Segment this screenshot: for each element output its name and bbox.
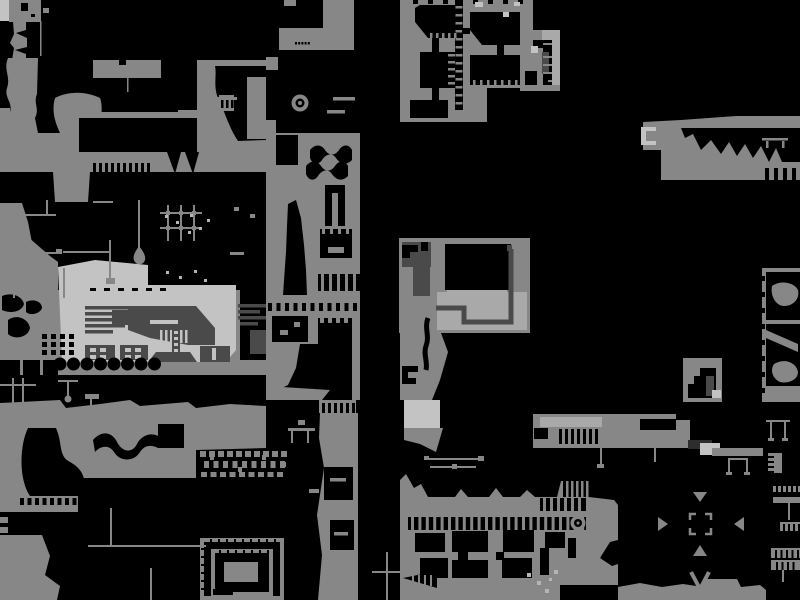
rubble-row2	[261, 461, 266, 468]
bigroom-tail-squiggle	[425, 318, 428, 370]
redge-box2	[771, 560, 800, 570]
tl-block-hole	[21, 3, 28, 11]
spiky-tooth	[785, 128, 788, 135]
redge-tickbar-tick	[796, 486, 798, 492]
tc-corridor-tick	[353, 274, 356, 291]
rubble-row3	[268, 472, 274, 477]
pole-vline-g	[63, 268, 65, 298]
bigroom-tail-light	[404, 400, 440, 428]
tc-ringbar2	[327, 110, 345, 114]
lt-window-row3	[69, 350, 74, 355]
brt-pole-pip3	[597, 464, 604, 468]
bc-striped-line	[581, 481, 584, 497]
tc-combrow-tick	[353, 303, 357, 311]
redge-box1-tick	[797, 550, 799, 558]
rubble-row1	[245, 451, 251, 457]
tr-top-tick	[413, 0, 418, 4]
bc-conn1	[458, 552, 468, 560]
tc-lower-room1-pip2	[294, 322, 300, 327]
shaft-combbox-tick	[340, 403, 343, 413]
tc-dot	[308, 42, 310, 45]
spiral-tick-left	[201, 556, 207, 558]
pole-grid-dotB	[192, 226, 196, 230]
lt-window-row1	[42, 334, 47, 339]
tl-comb-tick	[135, 163, 138, 172]
pole-vline-f	[52, 272, 54, 298]
tc-lower-room1	[272, 316, 308, 342]
bc-corridor-tick	[411, 517, 414, 530]
redge-box1-tick	[781, 550, 783, 558]
shelter-lightpip	[531, 46, 538, 53]
blq-comb-tick	[35, 498, 39, 505]
building-top-dash	[146, 288, 152, 291]
bc-conn4	[568, 538, 576, 558]
tr-conn4	[462, 28, 470, 34]
tc-corridor-tick	[321, 274, 324, 291]
lt-midblack-tick2	[40, 360, 43, 375]
bc-corridor-tick	[529, 517, 532, 530]
tr-shaft-rung	[456, 70, 463, 73]
lt-stripe1	[238, 304, 266, 308]
rubble-row2	[214, 461, 219, 468]
pole-hline-b-pip	[56, 249, 62, 254]
building-box2-pipsA	[135, 348, 141, 352]
tr-room5-tooth	[508, 80, 511, 85]
blq-comb-tick	[20, 498, 24, 505]
bc-bar-tick	[543, 498, 546, 511]
tr-room2-rung	[448, 54, 455, 57]
spiral-core	[224, 562, 258, 582]
redge-tickbar-tick	[786, 486, 788, 492]
rubble-row2	[252, 461, 257, 468]
bigroom-key-notch	[421, 242, 428, 251]
spiky-pole-v2	[782, 141, 785, 148]
tc-dot	[295, 42, 297, 45]
bc-arrow-hatch	[418, 575, 420, 586]
redge-box2-tick	[776, 562, 778, 570]
pip-scatter-i	[204, 279, 207, 282]
building-box1-pipsA	[90, 348, 96, 352]
rubble-row3	[211, 472, 217, 477]
lt-window-row2	[69, 342, 74, 347]
brt-comb	[589, 429, 592, 444]
rubble-extra3	[262, 455, 266, 460]
shaft-combbox-tick	[346, 403, 349, 413]
rubble-row2	[204, 461, 209, 468]
redge-box1-tick	[792, 550, 794, 558]
shaft-combbox-tick	[334, 403, 337, 413]
tr-room2-rung	[448, 61, 455, 64]
building-box2-pipsA	[125, 348, 131, 352]
building-box1-pipsA	[100, 348, 106, 352]
pip-band-a	[234, 207, 239, 211]
tl-arm	[93, 60, 161, 78]
shelter-darkbar	[542, 52, 549, 74]
mid-left-pole-h	[0, 384, 36, 386]
shaft-combbox-tick	[328, 403, 331, 413]
building-core-comb	[180, 330, 183, 343]
tr-room1-tooth	[442, 33, 445, 38]
rubble-row1	[281, 451, 287, 457]
lt-window-row1	[60, 334, 65, 339]
shelter-rung	[543, 64, 552, 66]
brt-pole-pip1	[726, 472, 732, 475]
pip-scatter-h	[194, 270, 197, 273]
redge-box1-tick	[775, 550, 777, 558]
bc-roomA2	[452, 531, 488, 552]
redge-combbox-tick	[768, 466, 774, 468]
pole-hline-b	[33, 252, 58, 254]
recave-tick	[762, 292, 765, 297]
tc-chamber-tick	[338, 229, 341, 234]
tr-top-tick	[443, 0, 448, 4]
bigroom-underline	[447, 290, 507, 293]
tr-top-tick	[458, 0, 463, 4]
spiral-tick-top	[226, 539, 228, 545]
bigroom-pipe-pip	[507, 245, 512, 251]
rubble-row3	[220, 472, 226, 477]
building-core-slot	[150, 320, 178, 324]
bc-lightdot1	[527, 573, 531, 577]
rubble-row3	[201, 472, 207, 477]
game-map[interactable]	[0, 0, 800, 600]
bc-corridor-tick	[507, 517, 510, 530]
tc-combrow-tick	[345, 303, 349, 311]
pole-grid-dotA	[166, 211, 170, 215]
tr-shaft-rung	[456, 94, 463, 97]
bc-corridor-tick	[433, 517, 436, 530]
rubble-extra4	[281, 462, 286, 467]
tr-shaft-rung	[456, 6, 463, 9]
mid-left-pole-v3	[67, 380, 69, 396]
bc-bar-tick	[557, 498, 560, 511]
brt-pole-h	[728, 458, 748, 460]
spiky-pole-v1	[766, 141, 769, 148]
tc-corridor-tick	[345, 274, 348, 291]
spiral-tick-top	[218, 539, 220, 545]
shaft-pocket1-bridge	[330, 478, 346, 482]
pip-scatter-j	[188, 231, 191, 234]
lt-scallop	[121, 358, 134, 371]
pole-vline-d	[13, 282, 15, 298]
redge-bar	[773, 497, 800, 503]
tail-pole-pip3	[424, 456, 429, 460]
tc-corridor-tick	[337, 274, 340, 291]
redge-box1-tick	[786, 550, 788, 558]
tr-shaft-rung	[456, 14, 463, 17]
rubble-row1	[272, 451, 278, 457]
tc-dot	[301, 42, 303, 45]
bc-bar-tick	[564, 498, 567, 511]
pip-scatter-e	[207, 219, 210, 222]
pole-hline-c	[63, 251, 110, 253]
tail-pole-h1	[424, 458, 480, 460]
tr-lightpip2	[503, 12, 509, 17]
rubble-row3	[258, 472, 264, 477]
pip-band-bar	[230, 252, 244, 255]
game-map-canvas[interactable]	[0, 0, 800, 600]
lt-stripe2	[238, 310, 260, 314]
shelter-rung-top	[543, 43, 552, 45]
pole-box-c	[106, 278, 115, 284]
lt-scallop	[135, 358, 148, 371]
tc-lower-room2-tick	[320, 318, 324, 323]
blq-pip1	[0, 517, 8, 523]
spiky-floor-tick	[792, 168, 796, 180]
tl-comb-tick	[99, 163, 102, 172]
tr-room2-rung	[448, 68, 455, 71]
repole-pip1	[768, 438, 774, 441]
tr-room3	[410, 100, 448, 118]
bc-ring-core	[577, 522, 580, 525]
reshelter-lightpip	[712, 390, 721, 398]
tl-band-hline	[93, 201, 113, 203]
recave-tick	[762, 324, 765, 329]
pole-vline-c	[109, 240, 111, 278]
tc-ringbar1	[333, 97, 355, 101]
rubble-extra2	[238, 467, 242, 472]
tl-cave-island	[247, 77, 266, 139]
bc-roomB2	[452, 560, 488, 578]
shaft-main	[317, 413, 358, 600]
redge-pole	[788, 503, 790, 520]
spiky-floor-tick	[774, 168, 778, 180]
tl-arm-pole	[127, 78, 129, 92]
bc-corridor-tick	[537, 517, 540, 530]
bc-striped-line	[571, 481, 574, 497]
brt-slit	[640, 419, 676, 430]
bc-lightdot5	[549, 578, 552, 581]
blq-comb-tick	[50, 498, 54, 505]
lt-stripe4	[240, 322, 258, 326]
shaft-pocket2-bridge	[334, 532, 348, 536]
brt-roof	[540, 417, 602, 427]
tl-pip	[43, 8, 49, 13]
building-core-comb	[165, 330, 168, 343]
shelter-rung-bot	[548, 80, 552, 82]
spiral-tick-left	[201, 548, 207, 550]
bc-conn3	[540, 548, 549, 575]
tc-corridor-tick	[329, 274, 332, 291]
brt-comb	[583, 429, 586, 444]
bc-pole-left-bar	[372, 571, 402, 573]
mid-left-dot	[65, 396, 72, 403]
tc-lower-rightsliver	[352, 344, 360, 400]
rubble-row1	[227, 451, 233, 457]
tr-lightpip3	[514, 2, 520, 6]
tr-shaft-rung	[456, 38, 463, 41]
bc-bar-tick	[571, 498, 574, 511]
tl-column-foot	[0, 108, 10, 133]
recave-tick	[762, 308, 765, 313]
bc-striped-line	[566, 481, 569, 497]
tr-top-tick	[428, 0, 433, 4]
lt-scallop	[54, 358, 67, 371]
spiral-gap	[213, 589, 233, 595]
bc-corridor-tick	[455, 517, 458, 530]
bc-striped-line	[586, 481, 589, 497]
bc-roomA1	[415, 533, 445, 552]
building-box3-slot	[212, 348, 216, 360]
tc-chamber-tick	[322, 229, 325, 234]
spiral-tick-top	[234, 539, 236, 545]
tc-lower-room2-tick	[344, 318, 348, 323]
tc-lower-room1-pip	[280, 330, 288, 335]
tc-chamber-tick	[346, 229, 349, 234]
tc-chamber-table	[328, 247, 344, 253]
bc-corridor-tick	[515, 517, 518, 530]
lt-scallop	[148, 358, 161, 371]
rubble-row3	[239, 472, 245, 477]
redge-combbox-tick	[768, 456, 774, 458]
tr-room5-tooth	[487, 80, 490, 85]
tr-top-tick	[488, 0, 493, 4]
spiral-tick-left	[201, 588, 207, 590]
shaft-combbox-tick	[352, 403, 355, 413]
bc-corridor-tick	[552, 517, 555, 530]
bc-corridor-tick	[478, 517, 481, 530]
shelter-rung	[543, 72, 552, 74]
spiral-tick-top	[274, 539, 276, 545]
tl-comb-tick	[93, 163, 96, 172]
tr-room5-tooth	[515, 80, 518, 85]
pole-droplet-line	[138, 200, 140, 248]
bc-corridor-tick	[522, 517, 525, 530]
brt-comb	[595, 429, 598, 444]
brt-pole-v2	[746, 460, 748, 474]
recave-tick	[762, 340, 765, 345]
lt-window-row2	[42, 342, 47, 347]
spiky-step	[643, 150, 661, 180]
shaft-pole-t-leg1	[291, 431, 293, 443]
redge-pole2	[782, 570, 784, 582]
tr-shaft-rung	[456, 22, 463, 25]
tc-combrow-tick	[319, 303, 323, 311]
spiral-tick-left	[201, 564, 207, 566]
repole-pip2	[782, 438, 788, 441]
redge-tickbar-tick	[791, 486, 793, 492]
lt-stripe3	[238, 316, 266, 320]
mid-left-pole-v2	[22, 378, 24, 404]
tr-conn2	[432, 88, 439, 100]
blq-pip2	[0, 527, 8, 533]
tr-room5-tooth	[501, 80, 504, 85]
tl-comb-tick	[117, 163, 120, 172]
tc-combrow-tick	[277, 303, 281, 311]
pole-grid-dotB	[179, 226, 183, 230]
brt-comb	[559, 429, 562, 444]
bc-corridor-tick	[500, 517, 503, 530]
tl-comb-tick	[141, 163, 144, 172]
bc-corridor-tick	[544, 517, 547, 530]
rubble-row3	[230, 472, 236, 477]
bc-lightdot3	[545, 589, 549, 593]
redge-combbox-tick	[768, 471, 774, 473]
bc-lightdot2	[537, 581, 541, 585]
tc-chamber-tick	[330, 229, 333, 234]
tc-dot	[298, 42, 300, 45]
bc-corridor-tick	[559, 517, 562, 530]
spiral-tick-top	[266, 539, 268, 545]
redge-box2-tick	[793, 562, 795, 570]
tr-room1-tooth	[448, 33, 451, 38]
tr-room5-tooth	[480, 80, 483, 85]
pip-band-b	[250, 214, 255, 218]
tr-top-tick	[503, 0, 508, 4]
redge-comb2-tick	[783, 524, 785, 531]
blq-pole-h	[88, 545, 206, 547]
brt-pole-v3	[654, 448, 656, 462]
tail-pole-pip2	[452, 464, 457, 469]
tr-shaft-rung	[456, 46, 463, 49]
tc-utube-bar	[332, 193, 338, 226]
building-core-comb	[160, 330, 163, 343]
rubble-row2	[223, 461, 228, 468]
pole-grid-v	[193, 205, 195, 241]
spiky-pole-h	[762, 138, 788, 141]
rubble-row1	[236, 451, 242, 457]
building-top-dash	[132, 288, 138, 291]
spiral-tick-top	[242, 539, 244, 545]
bigroom-darkcol	[413, 257, 430, 296]
tc-combrow-tick	[328, 303, 332, 311]
pip-scatter-g	[179, 276, 182, 279]
tr-room1-tooth	[454, 33, 457, 38]
spiky-tooth	[763, 128, 766, 135]
pole-grid-dotA	[179, 211, 183, 215]
bc-roomA4	[545, 532, 565, 548]
lt-midblack	[0, 360, 58, 375]
repole-h	[766, 420, 790, 422]
building-top-dash	[118, 288, 124, 291]
redge-tickbar-tick	[781, 486, 783, 492]
pip-scatter-d	[199, 227, 202, 230]
blq-comb-tick	[28, 498, 32, 505]
tc-leftlink	[266, 57, 278, 70]
lt-window-row2	[60, 342, 65, 347]
tr-conn1	[432, 38, 439, 52]
lt-window-row3	[60, 350, 65, 355]
lt-window-row1	[69, 334, 74, 339]
pip-scatter-c	[190, 214, 193, 217]
brt-comb	[577, 429, 580, 444]
bc-roomA3	[503, 530, 534, 552]
tl-comb-tick	[105, 163, 108, 172]
rubble-row2	[233, 461, 238, 468]
bc-corridor-tick	[566, 517, 569, 530]
shaft-pole-t-bar	[288, 428, 315, 431]
bc-corridor-tick	[463, 517, 466, 530]
blq-comb-tick	[65, 498, 69, 505]
brt-pole-v1	[728, 460, 730, 474]
tl-corner-light	[0, 0, 9, 21]
pip-scatter-a	[165, 215, 168, 218]
rubble-row1	[200, 451, 206, 457]
redge-tickbar-tick	[776, 486, 778, 492]
rubble-row3	[249, 472, 255, 477]
spiral-tick-mid	[219, 550, 221, 556]
pip-scatter-b	[176, 221, 179, 224]
redge-box2-tick	[787, 562, 789, 570]
tr-shaft-rung	[456, 30, 463, 33]
building-stem-pip	[174, 349, 178, 352]
recave-tick	[762, 356, 765, 361]
recave-tick	[762, 276, 765, 281]
tr-shaft-rung	[456, 54, 463, 57]
tl-pole	[40, 21, 42, 56]
lt-scallop	[94, 358, 107, 371]
tr-room5-tooth	[494, 80, 497, 85]
